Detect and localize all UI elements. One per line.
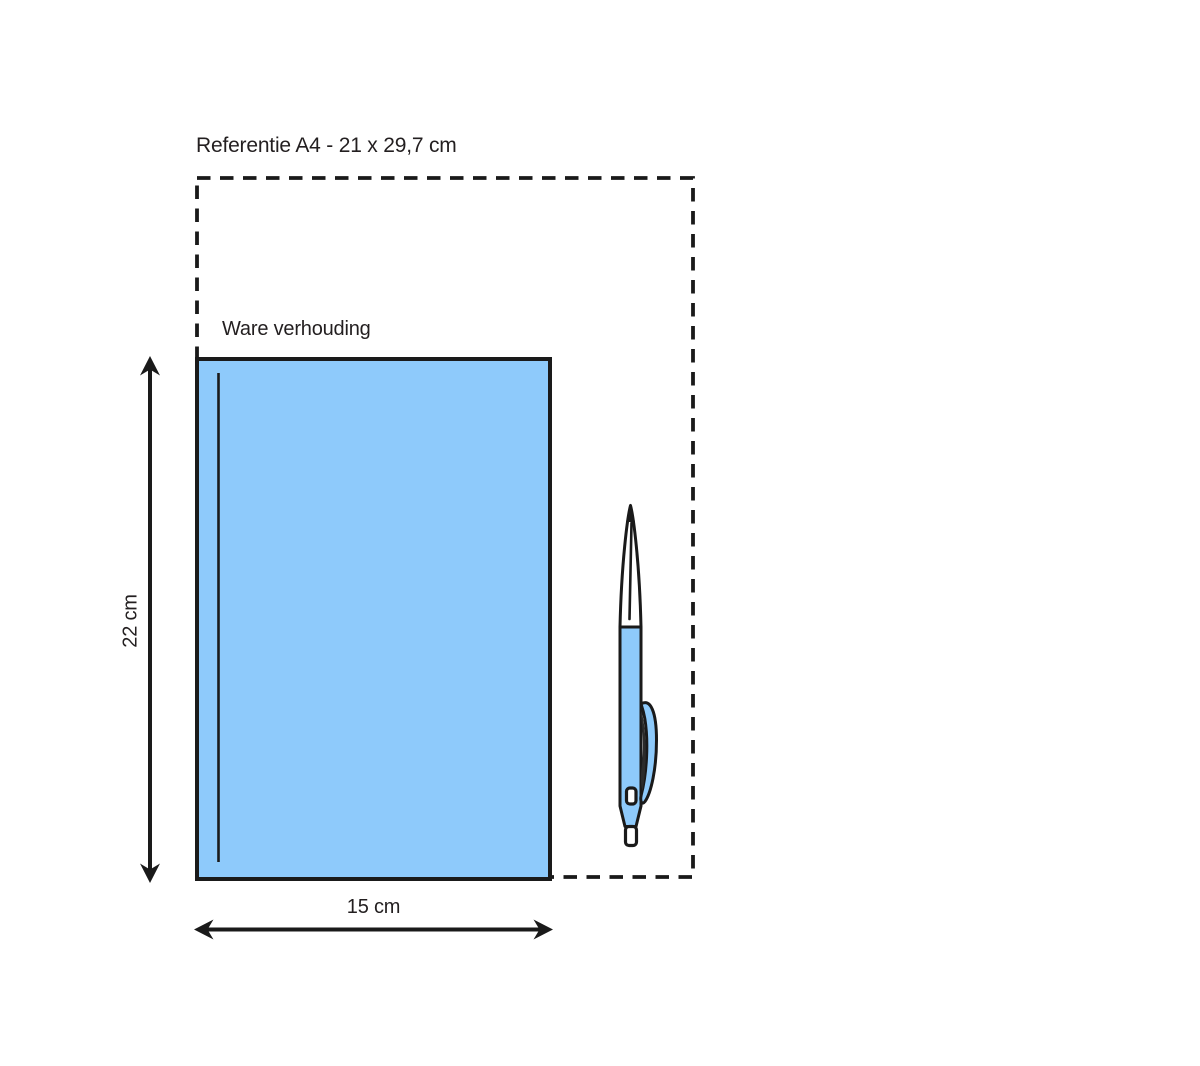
size-comparison-diagram: Referentie A4 - 21 x 29,7 cm Ware verhou… [0,0,1200,1066]
true-scale-label: Ware verhouding [222,318,371,341]
product-rectangle [197,359,550,879]
width-dimension-label: 15 cm [197,896,550,919]
height-dimension-arrow [140,356,160,883]
pen-push-button [626,827,637,846]
pen-slot [627,788,637,804]
height-dimension-label: 22 cm [120,594,143,647]
pen-tip [626,504,635,523]
width-dimension-arrow [194,920,553,940]
reference-size-label: Referentie A4 - 21 x 29,7 cm [196,134,457,158]
diagram-canvas [0,0,1200,1066]
pen-icon [620,504,657,846]
